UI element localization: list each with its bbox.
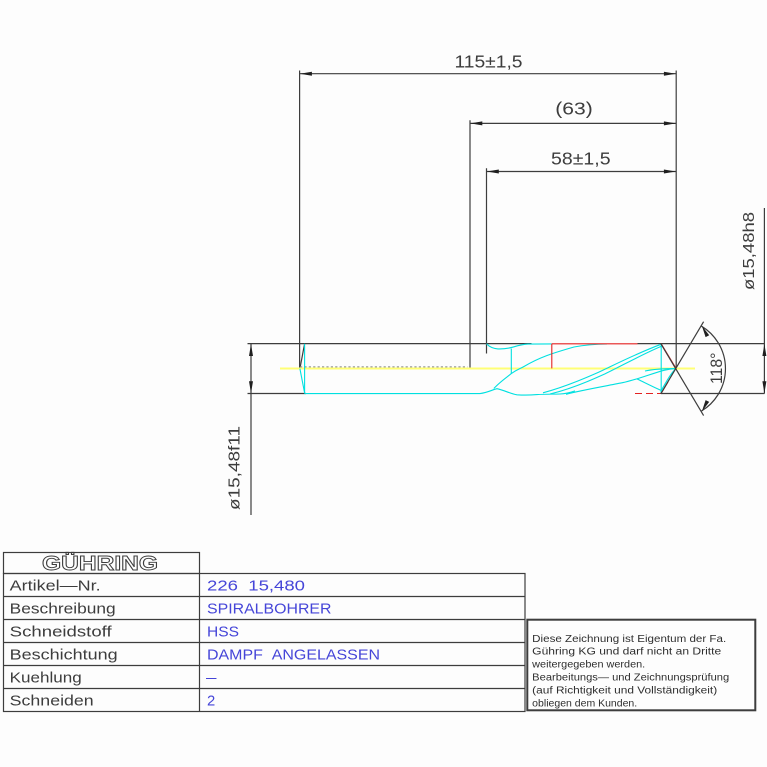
svg-text:Artikel—Nr.: Artikel—Nr.: [10, 578, 101, 594]
svg-text:Kuehlung: Kuehlung: [10, 670, 82, 686]
svg-text:2: 2: [207, 693, 215, 709]
svg-text:Diese Zeichnung ist Eigentum d: Diese Zeichnung ist Eigentum der Fa.: [532, 634, 726, 645]
svg-text:Schneiden: Schneiden: [10, 693, 94, 709]
svg-text:–: –: [206, 670, 217, 686]
svg-text:SPIRALBOHRER: SPIRALBOHRER: [207, 601, 332, 617]
svg-text:Gühring KG und darf nicht an D: Gühring KG und darf nicht an Dritte: [532, 647, 722, 658]
svg-text:weitergegeben werden.: weitergegeben werden.: [531, 660, 645, 671]
svg-text:Beschichtung: Beschichtung: [10, 647, 118, 663]
svg-text:GÜHRING: GÜHRING: [42, 552, 158, 575]
svg-text:DAMPF ANGELASSEN: DAMPF ANGELASSEN: [207, 647, 380, 663]
svg-text:115±1,5: 115±1,5: [455, 52, 523, 72]
svg-text:58±1,5: 58±1,5: [551, 149, 611, 169]
svg-text:Bearbeitungs— und Zeichnungspr: Bearbeitungs— und Zeichnungsprüfung: [532, 673, 729, 684]
svg-text:226 15,480: 226 15,480: [207, 578, 305, 594]
svg-text:ø15,48h8: ø15,48h8: [741, 212, 758, 290]
svg-text:obliegen dem Kunden.: obliegen dem Kunden.: [532, 698, 637, 709]
svg-text:ø15,48f11: ø15,48f11: [227, 426, 244, 510]
svg-text:118°: 118°: [707, 353, 726, 385]
svg-text:(63): (63): [555, 98, 593, 118]
svg-text:Beschreibung: Beschreibung: [10, 601, 116, 617]
svg-text:(auf Richtigkeit und Vollständ: (auf Richtigkeit und Vollständigkeit): [532, 685, 717, 696]
svg-text:Schneidstoff: Schneidstoff: [10, 624, 113, 640]
svg-text:HSS: HSS: [207, 624, 239, 640]
